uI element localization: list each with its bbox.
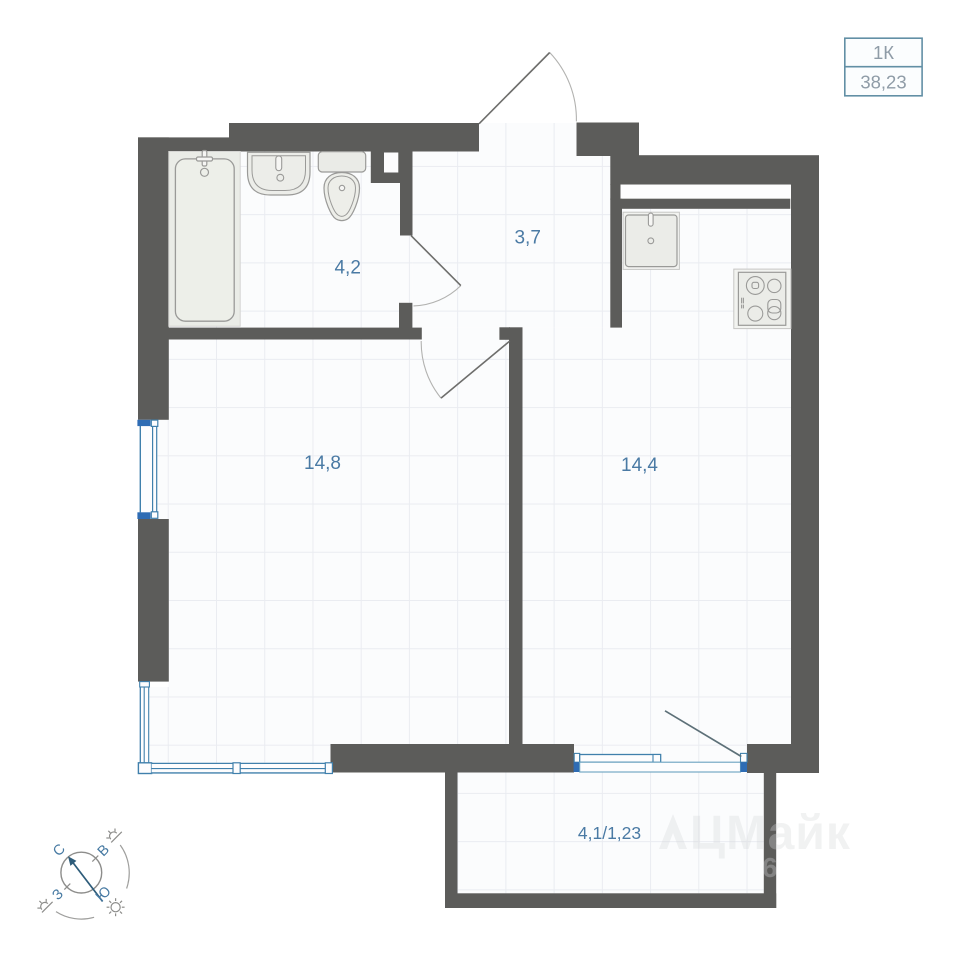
svg-text:1К: 1К — [873, 42, 894, 63]
svg-text:14,8: 14,8 — [304, 453, 341, 474]
svg-text:14,4: 14,4 — [621, 455, 658, 476]
svg-text:З: З — [49, 886, 67, 904]
svg-text:4,1/1,23: 4,1/1,23 — [578, 823, 641, 843]
svg-text:38,23: 38,23 — [860, 72, 906, 93]
svg-text:4,2: 4,2 — [334, 258, 360, 279]
svg-text:6: 6 — [762, 852, 778, 883]
svg-text:В: В — [95, 842, 113, 860]
svg-text:С: С — [50, 841, 69, 860]
svg-text:3,7: 3,7 — [514, 228, 540, 249]
